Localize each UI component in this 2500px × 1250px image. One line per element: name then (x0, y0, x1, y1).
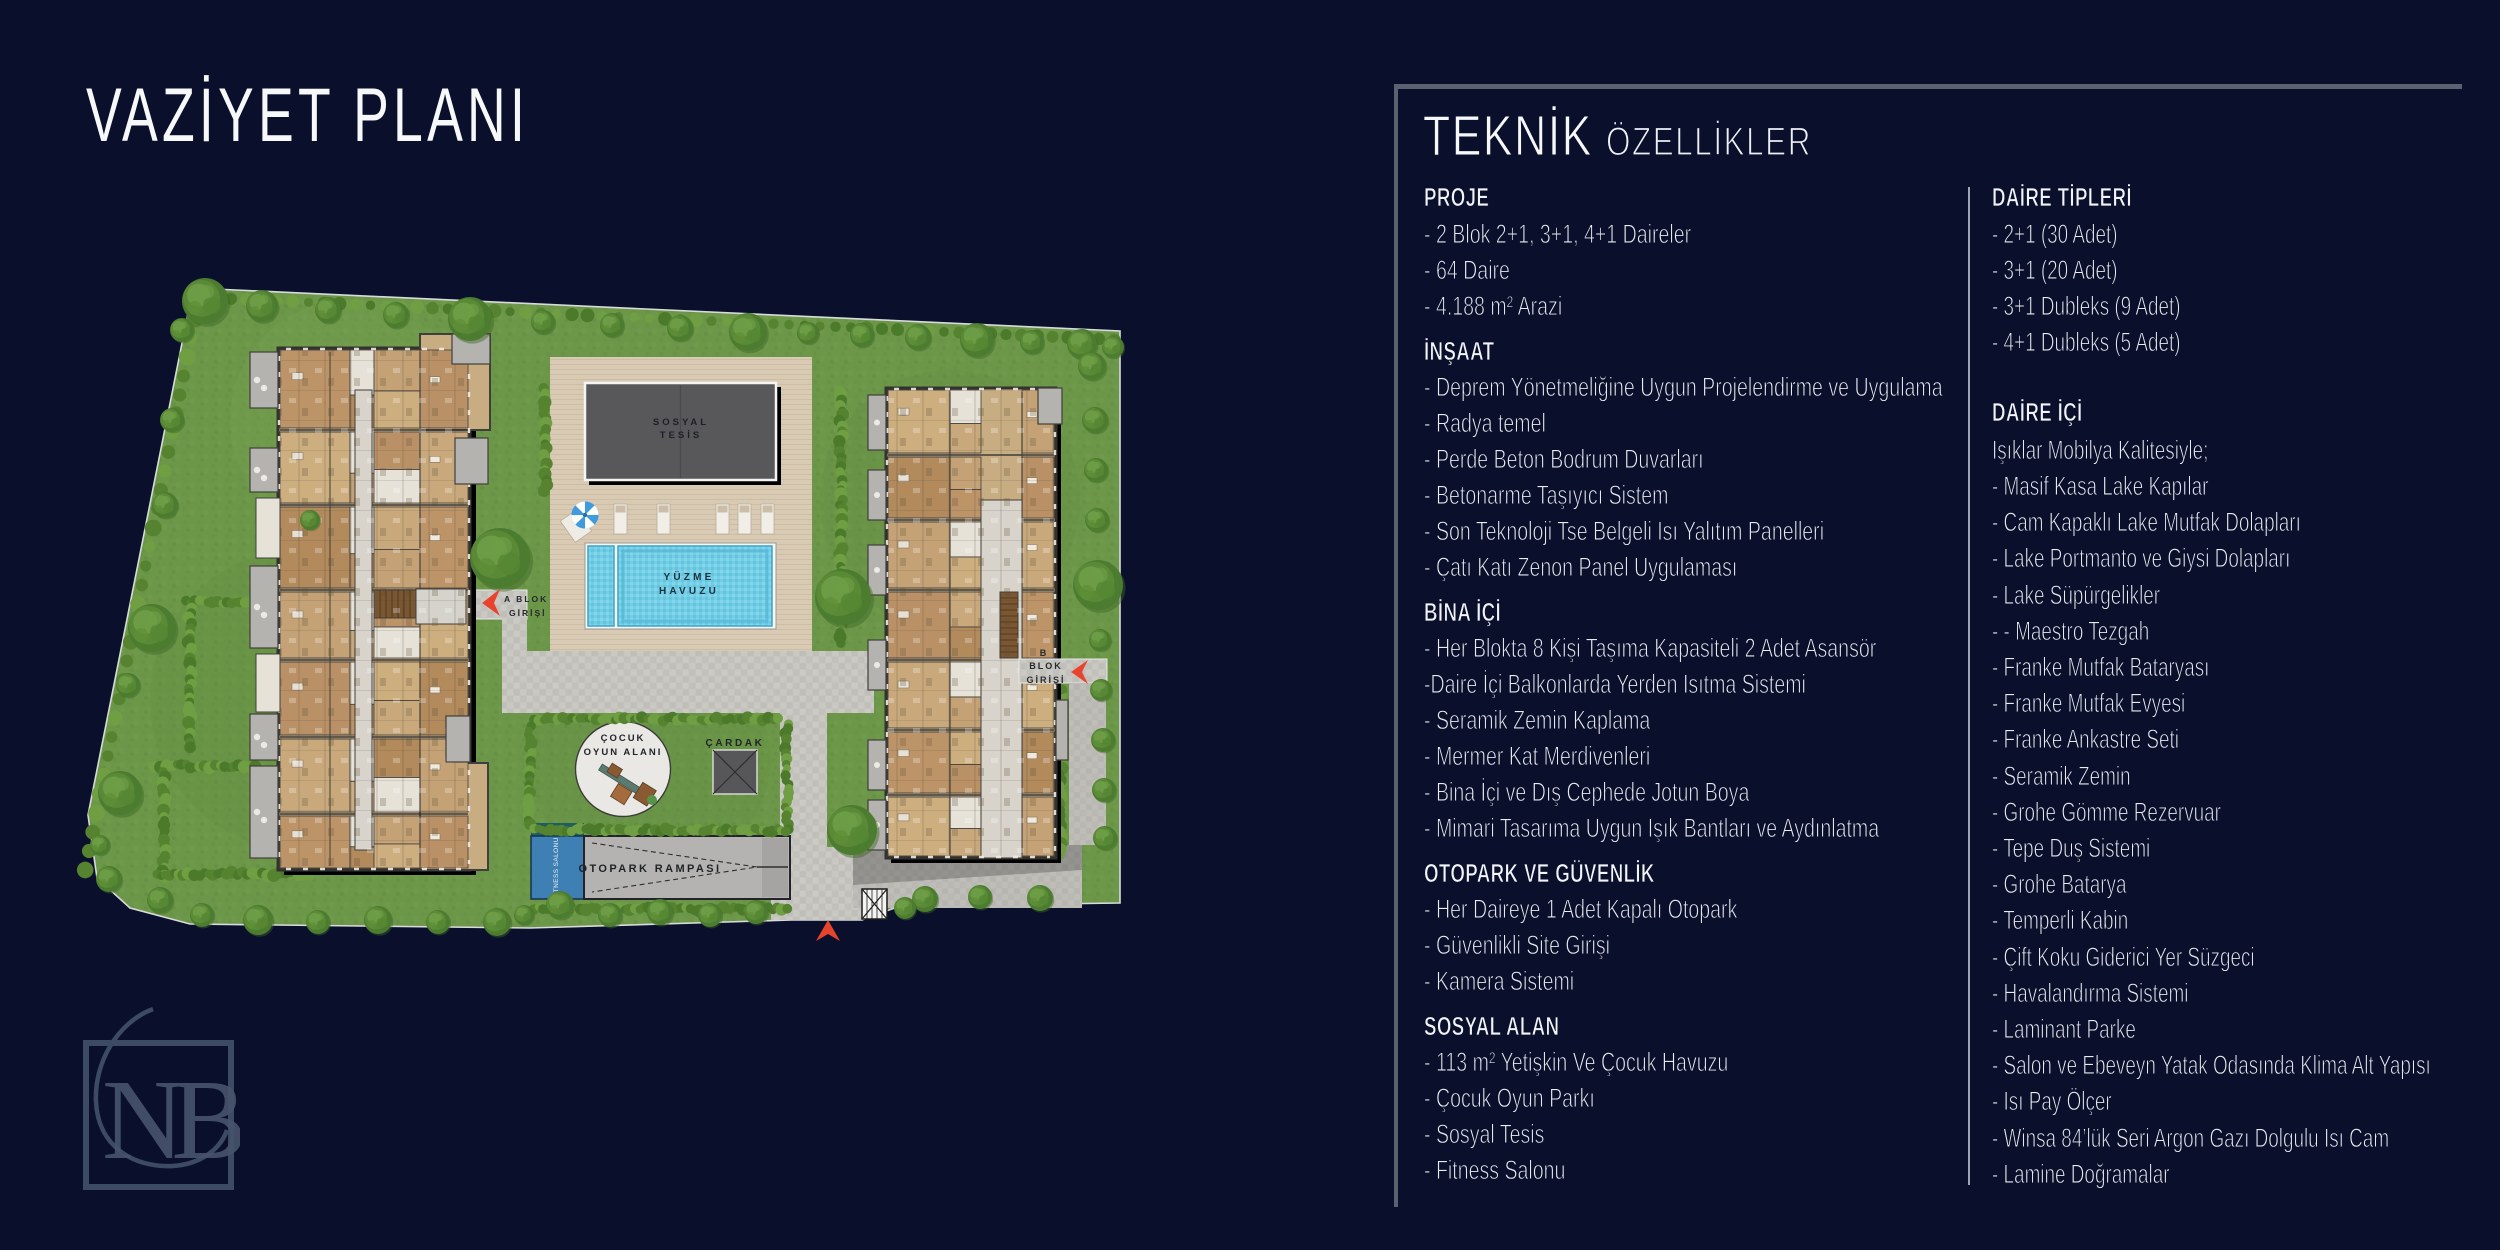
svg-text:GİRİŞİ: GİRİŞİ (509, 608, 547, 618)
svg-text:B: B (1040, 648, 1049, 658)
svg-text:A BLOK: A BLOK (504, 594, 548, 604)
svg-text:ÇOCUK: ÇOCUK (601, 733, 646, 744)
svg-text:NB: NB (102, 1056, 240, 1183)
svg-text:TESİS: TESİS (660, 430, 702, 441)
svg-text:YÜZME: YÜZME (664, 570, 715, 583)
svg-text:OYUN ALANI: OYUN ALANI (584, 747, 663, 758)
svg-text:OTOPARK RAMPASI: OTOPARK RAMPASI (579, 863, 722, 875)
svg-text:HAVUZU: HAVUZU (659, 586, 719, 597)
svg-text:BLOK: BLOK (1029, 661, 1063, 671)
svg-text:FITNESS SALONU: FITNESS SALONU (553, 837, 560, 899)
svg-text:GİRİŞİ: GİRİŞİ (1026, 675, 1065, 685)
svg-text:SOSYAL: SOSYAL (653, 417, 709, 428)
svg-text:ÇARDAK: ÇARDAK (706, 738, 765, 749)
